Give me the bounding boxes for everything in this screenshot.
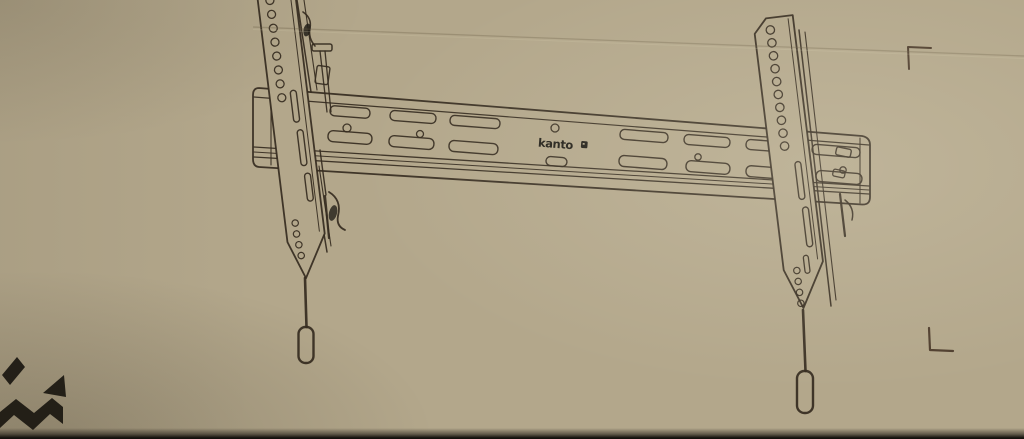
mounting-slot [390, 110, 437, 124]
box-crease [253, 27, 1024, 59]
logo-zigzag-shape [0, 398, 63, 430]
mounting-slot [684, 134, 731, 148]
center-oval-slot [546, 156, 568, 167]
right-tilt-hardware [832, 147, 852, 236]
mounting-slot [450, 115, 501, 129]
packaging-photo: kanto [0, 0, 1024, 439]
mounting-slot [328, 130, 373, 144]
right-tilt-rod [803, 310, 806, 371]
kanto-wordmark: kanto [538, 136, 574, 153]
right-bracket-plate [753, 15, 828, 310]
left-bracket-plate [257, 0, 330, 280]
mounting-slot [449, 140, 499, 155]
mounting-slot [619, 155, 668, 170]
right-tilt-handle [797, 371, 813, 413]
left-tilt-rod [305, 278, 307, 327]
mounting-slot [330, 105, 371, 118]
kanto-trademark-glyph-notch [583, 143, 585, 145]
mounting-slot [389, 135, 435, 149]
kanto-corner-logo [0, 357, 66, 430]
left-tilt-handle [299, 327, 314, 363]
box-artwork: kanto [0, 0, 1024, 439]
brand-print: kanto [538, 136, 588, 154]
crop-mark-bottom-right [929, 328, 953, 351]
left-tv-bracket [257, 0, 345, 363]
right-tv-bracket [753, 15, 853, 413]
crop-mark-top-right [908, 47, 931, 69]
logo-diamond-shape [2, 357, 25, 385]
mounting-slot [686, 160, 731, 174]
logo-triangle-shape [43, 375, 66, 397]
mounting-slot [620, 129, 669, 143]
